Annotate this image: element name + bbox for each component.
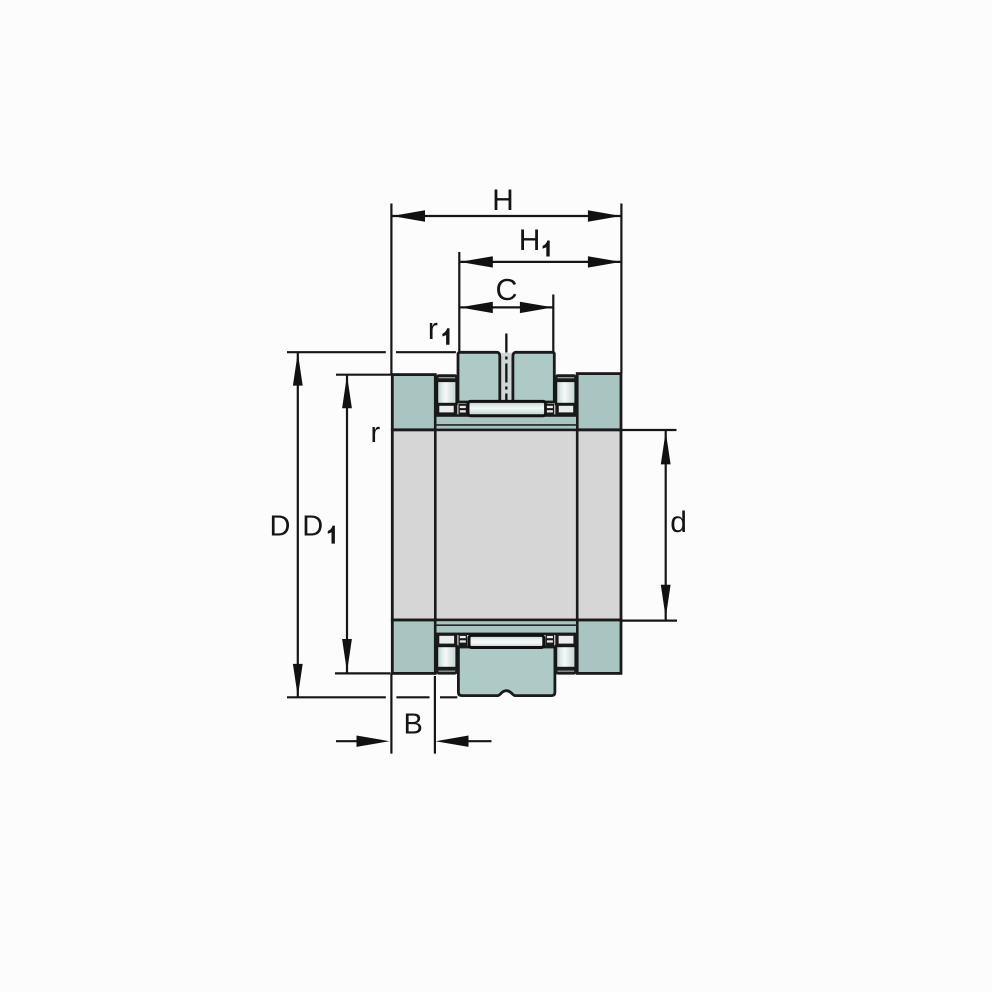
svg-text:r: r: [428, 312, 438, 346]
svg-text:C: C: [495, 273, 517, 307]
svg-text:D: D: [270, 511, 291, 543]
svg-text:B: B: [404, 709, 423, 741]
svg-text:H: H: [492, 184, 514, 217]
svg-text:d: d: [670, 506, 687, 539]
svg-text:D: D: [302, 511, 323, 543]
svg-text:H: H: [519, 224, 541, 257]
svg-text:r: r: [371, 417, 381, 449]
